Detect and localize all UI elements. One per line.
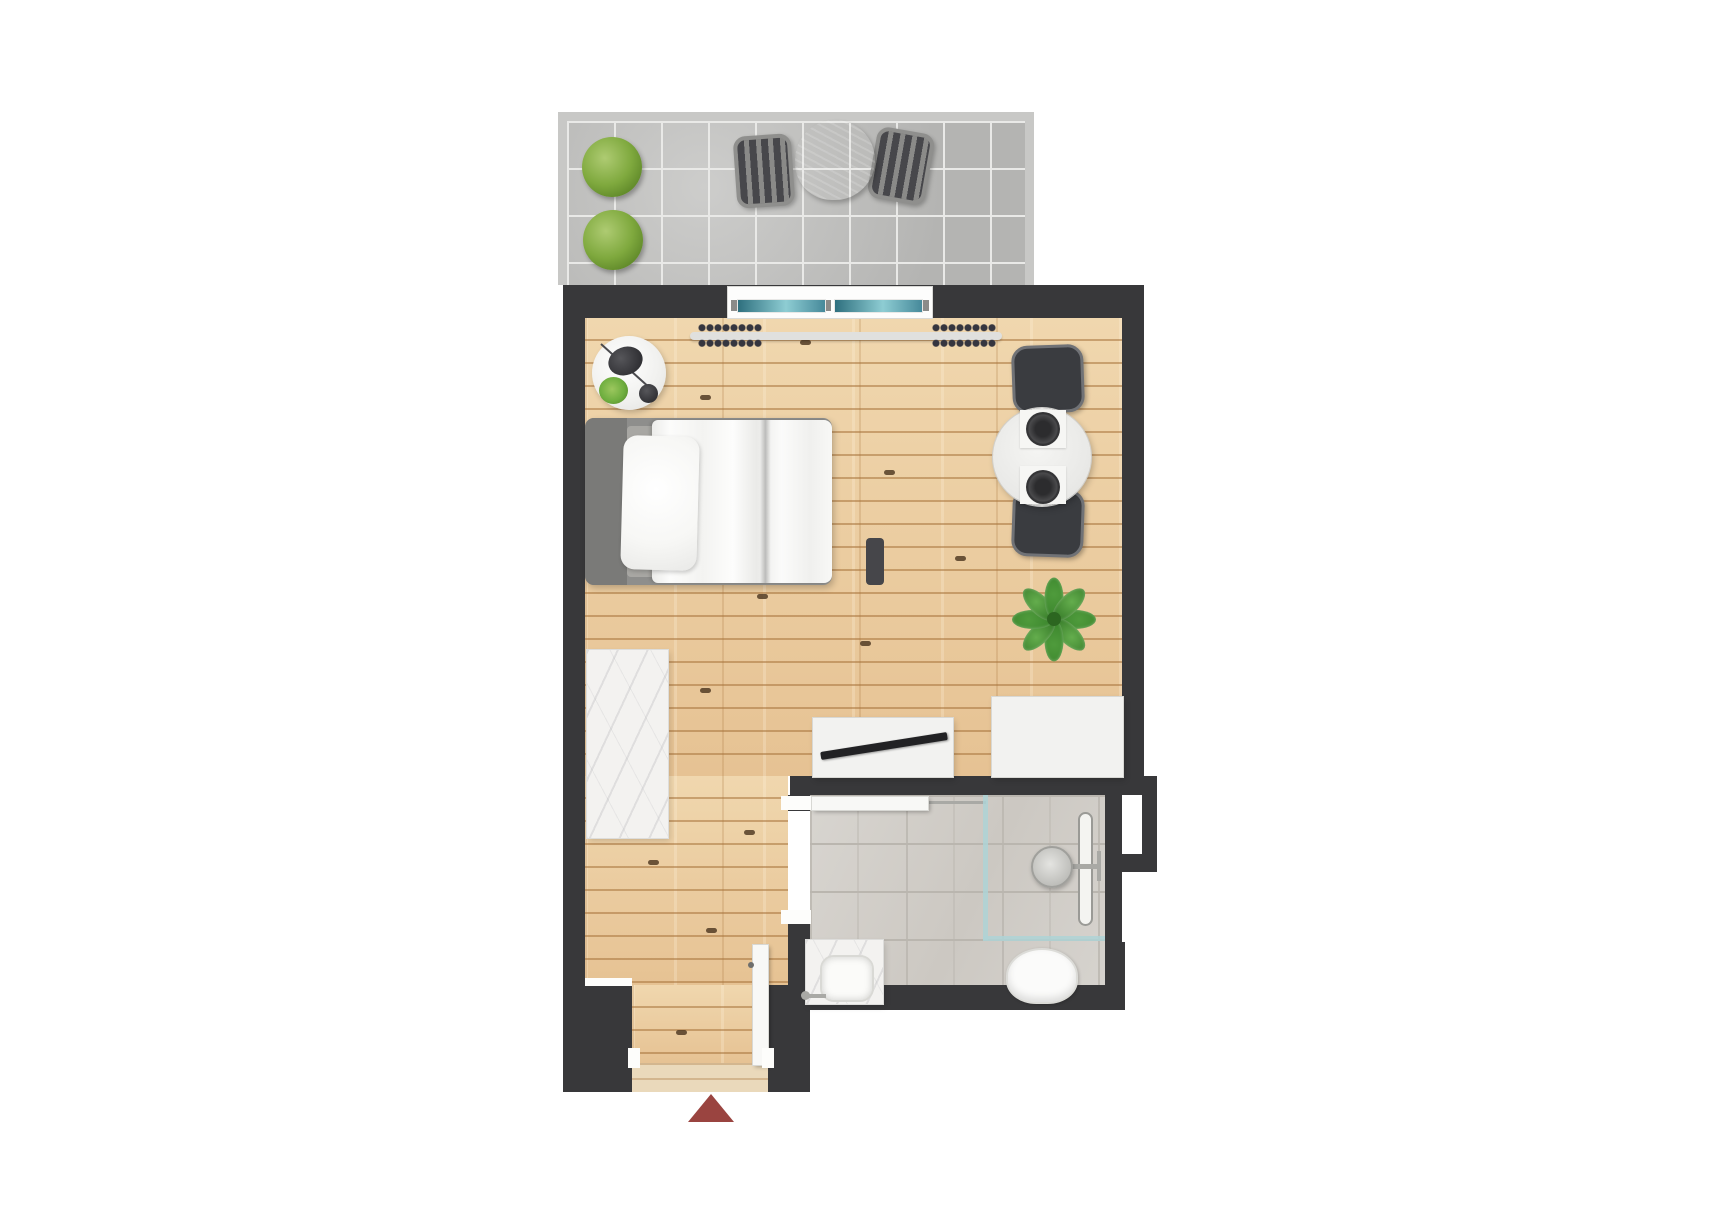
bathroom-door-jamb-bottom (781, 910, 811, 924)
wall-entry-right-block (768, 985, 810, 1092)
balcony-bistro-table (795, 120, 875, 200)
window-end-cap-right (923, 300, 929, 311)
plant-pot (1047, 612, 1061, 626)
bed-foot-throw (866, 538, 884, 585)
window-glass-pane-left (737, 299, 826, 313)
towel-bar (928, 801, 986, 804)
bedside-plant (599, 377, 628, 404)
sink-basin (820, 955, 874, 1002)
wall-step-cap (585, 978, 632, 986)
shower-glass-vertical (983, 795, 988, 940)
toilet (1006, 948, 1078, 1004)
entry-door-handle (748, 962, 754, 968)
side-console (992, 697, 1123, 777)
entry-threshold (632, 1063, 768, 1092)
wall-bottom-left-block (563, 985, 632, 1092)
shower-linear-drain (1078, 812, 1093, 926)
curtain-rings-right (932, 320, 996, 351)
entrance-direction-arrow (688, 1094, 734, 1122)
curtain-rings-left (698, 320, 762, 351)
marble-counter (587, 650, 668, 838)
window-end-cap-left (731, 300, 737, 311)
wall-bathroom-inner-right (1105, 795, 1122, 942)
entry-door-jamb-right (762, 1048, 774, 1068)
wall-bathroom-bottom-right-block (1105, 942, 1125, 1010)
balcony-bush-planter-1 (582, 137, 642, 197)
wall-left (563, 285, 585, 985)
window-center-cap (826, 300, 831, 311)
balcony-chair-left (733, 133, 796, 209)
bathroom-door-leaf (812, 797, 928, 810)
entry-door-jamb-left (628, 1048, 640, 1068)
potted-plant (1008, 573, 1100, 665)
rain-shower-head (1031, 846, 1073, 888)
entry-corridor-floor (632, 985, 768, 1063)
entry-door-leaf (753, 945, 768, 1065)
balcony-bush-planter-2 (583, 210, 643, 270)
dining-chair-top (1011, 344, 1085, 414)
dining-plate-top (1026, 412, 1060, 446)
wall-bathroom-top (790, 776, 1157, 795)
faucet-handle (801, 991, 810, 1000)
dining-plate-bottom (1026, 470, 1060, 504)
window-glass-pane-right (834, 299, 923, 313)
balcony-chair-right (866, 126, 936, 207)
lamp-base (639, 384, 658, 403)
floor-plan (0, 0, 1723, 1216)
wall-right (1122, 285, 1144, 776)
shower-arm-bracket (1097, 851, 1101, 881)
wall-shaft-horizontal (1122, 854, 1157, 872)
bed-pillow (620, 435, 699, 571)
shower-glass-horizontal (983, 936, 1105, 941)
bathroom-door-jamb-top (781, 796, 811, 810)
